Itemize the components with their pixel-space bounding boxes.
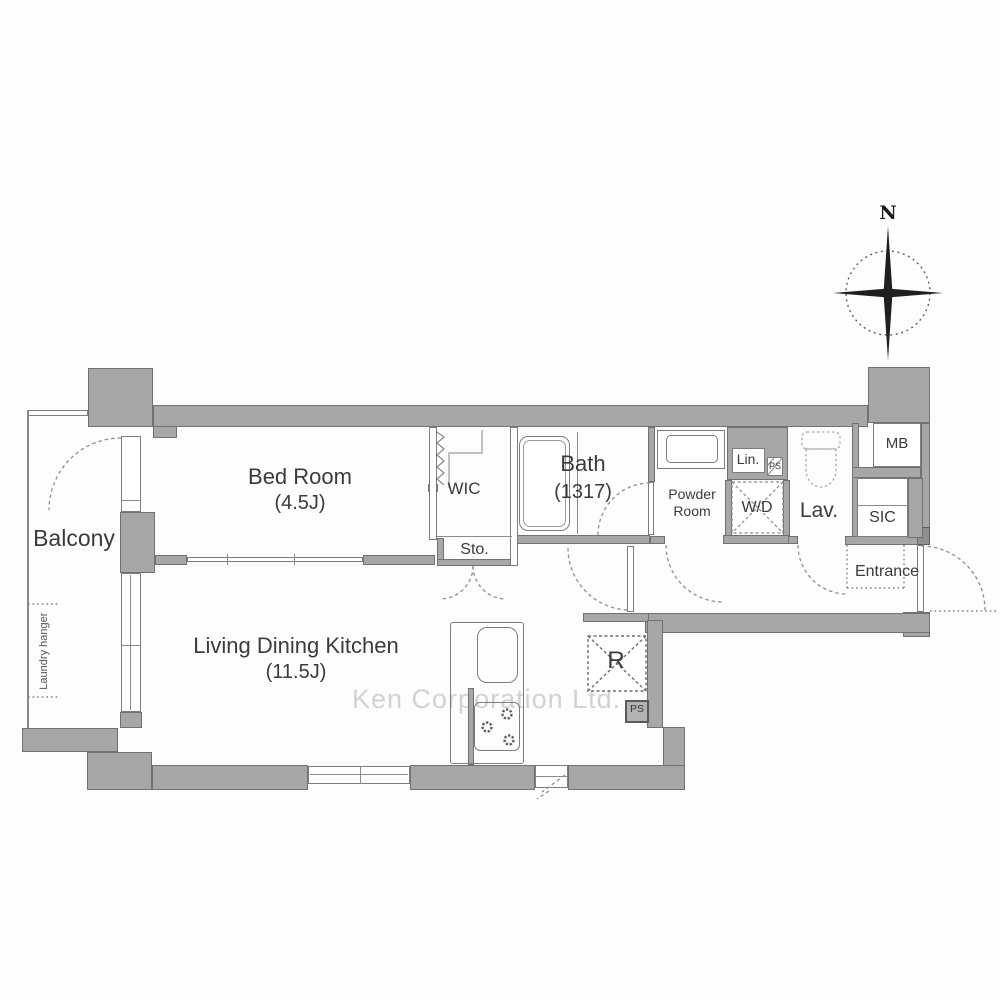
- door-arc-lavatory: [798, 545, 847, 594]
- wall: [153, 405, 868, 427]
- wall: [153, 426, 177, 438]
- door-arc-entrance: [921, 546, 985, 610]
- wall: [513, 535, 650, 544]
- wall: [908, 478, 923, 538]
- lavatory-label: Lav.: [788, 499, 850, 523]
- wall: [22, 728, 118, 752]
- balcony-label: Balcony: [28, 526, 120, 552]
- wall: [120, 712, 142, 728]
- sliding-partition: [187, 557, 363, 562]
- powder-room-label-1: Powder: [656, 487, 728, 503]
- wall: [410, 765, 535, 790]
- wic-label: WIC: [434, 479, 494, 498]
- compass-north-label: N: [875, 203, 901, 224]
- sic-shelf-line: [858, 505, 907, 506]
- door-arc-powder: [666, 545, 723, 602]
- wall: [363, 555, 435, 565]
- wall: [647, 620, 663, 728]
- wall: [723, 535, 790, 544]
- washer-dryer-label: W/D: [730, 499, 784, 517]
- wall: [152, 765, 308, 790]
- wall: [868, 367, 930, 423]
- wall: [437, 559, 512, 566]
- window-sash: [121, 645, 141, 646]
- ldk-balcony-window: [121, 573, 141, 712]
- door-arc-ldk: [568, 548, 630, 610]
- storage-label: Sto.: [437, 541, 512, 559]
- wall: [648, 427, 655, 482]
- laundry-hanger-label: Laundry hanger: [38, 601, 50, 701]
- entrance-label: Entrance: [848, 563, 926, 581]
- door-arc-bedroom-balcony: [49, 438, 121, 510]
- bath-size-label: (1317): [533, 481, 633, 503]
- window-sash: [121, 500, 141, 501]
- wall: [120, 512, 155, 573]
- window-line: [130, 575, 131, 710]
- wall: [568, 765, 685, 790]
- ps-upper-label: PS: [766, 461, 784, 471]
- ldk-south-window: [308, 766, 410, 784]
- balcony-rail-west: [27, 410, 29, 728]
- door-arc-storage-left: [440, 566, 473, 599]
- toilet: [802, 432, 840, 487]
- bedroom-label: Bed Room: [225, 465, 375, 490]
- floor-plan: Ken Corporation Ltd.: [0, 0, 1000, 1000]
- wall: [650, 536, 665, 544]
- bath-door-leaf: [648, 482, 654, 535]
- wall: [645, 613, 930, 633]
- partition-tick: [227, 554, 228, 565]
- wic-hanger-zigzag: [437, 432, 444, 485]
- refrigerator-label: R: [596, 648, 636, 675]
- ldk-size-label: (11.5J): [171, 661, 421, 683]
- wic-sto-divider: [437, 536, 512, 537]
- wall: [88, 368, 153, 427]
- ps-lower-label: PS: [625, 704, 649, 716]
- powder-sink-basin: [666, 435, 718, 463]
- balcony-rail-top: [27, 410, 88, 416]
- powder-room-label-2: Room: [656, 504, 728, 520]
- kitchen-stove: [474, 702, 520, 751]
- partition-tick: [294, 554, 295, 565]
- bath-label: Bath: [533, 452, 633, 477]
- floorplan-linework: [0, 0, 1000, 1000]
- bedroom-size-label: (4.5J): [225, 492, 375, 514]
- shoe-closet-label: SIC: [857, 509, 908, 527]
- wall: [852, 467, 921, 478]
- wall: [87, 752, 152, 790]
- compass-rose-icon: [833, 226, 943, 360]
- linen-label: Lin.: [731, 452, 765, 468]
- hatch-line: [536, 776, 567, 777]
- door-arc-storage-right: [473, 566, 506, 599]
- wall: [788, 536, 798, 544]
- ldk-label: Living Dining Kitchen: [171, 634, 421, 659]
- wall: [155, 555, 187, 565]
- shoe-closet-box: [857, 478, 908, 537]
- wall: [583, 613, 649, 622]
- kitchen-sink: [477, 627, 518, 683]
- meter-box-label: MB: [873, 436, 921, 453]
- window-line: [310, 774, 408, 775]
- window-mullion: [360, 766, 361, 784]
- ldk-door-leaf: [627, 546, 634, 612]
